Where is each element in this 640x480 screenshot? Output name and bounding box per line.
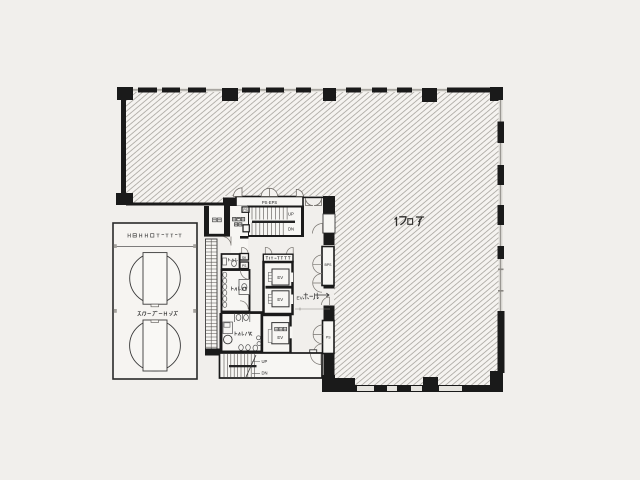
svg-text:UP: UP — [288, 212, 294, 217]
svg-text:EV: EV — [277, 335, 283, 340]
svg-text:PS: PS — [243, 208, 248, 212]
svg-text:DN: DN — [262, 371, 268, 376]
svg-text:EV: EV — [277, 297, 283, 302]
svg-text:DN: DN — [288, 227, 294, 232]
svg-text:EV: EV — [277, 275, 283, 280]
svg-text:PS: PS — [242, 264, 247, 268]
svg-text:SK: SK — [242, 256, 247, 260]
svg-text:BPS: BPS — [324, 263, 332, 267]
svg-text:PS: PS — [326, 336, 331, 340]
svg-text:UP: UP — [262, 359, 268, 364]
svg-text:PS·EPS: PS·EPS — [262, 200, 278, 205]
svg-text:EV: EV — [297, 296, 304, 301]
